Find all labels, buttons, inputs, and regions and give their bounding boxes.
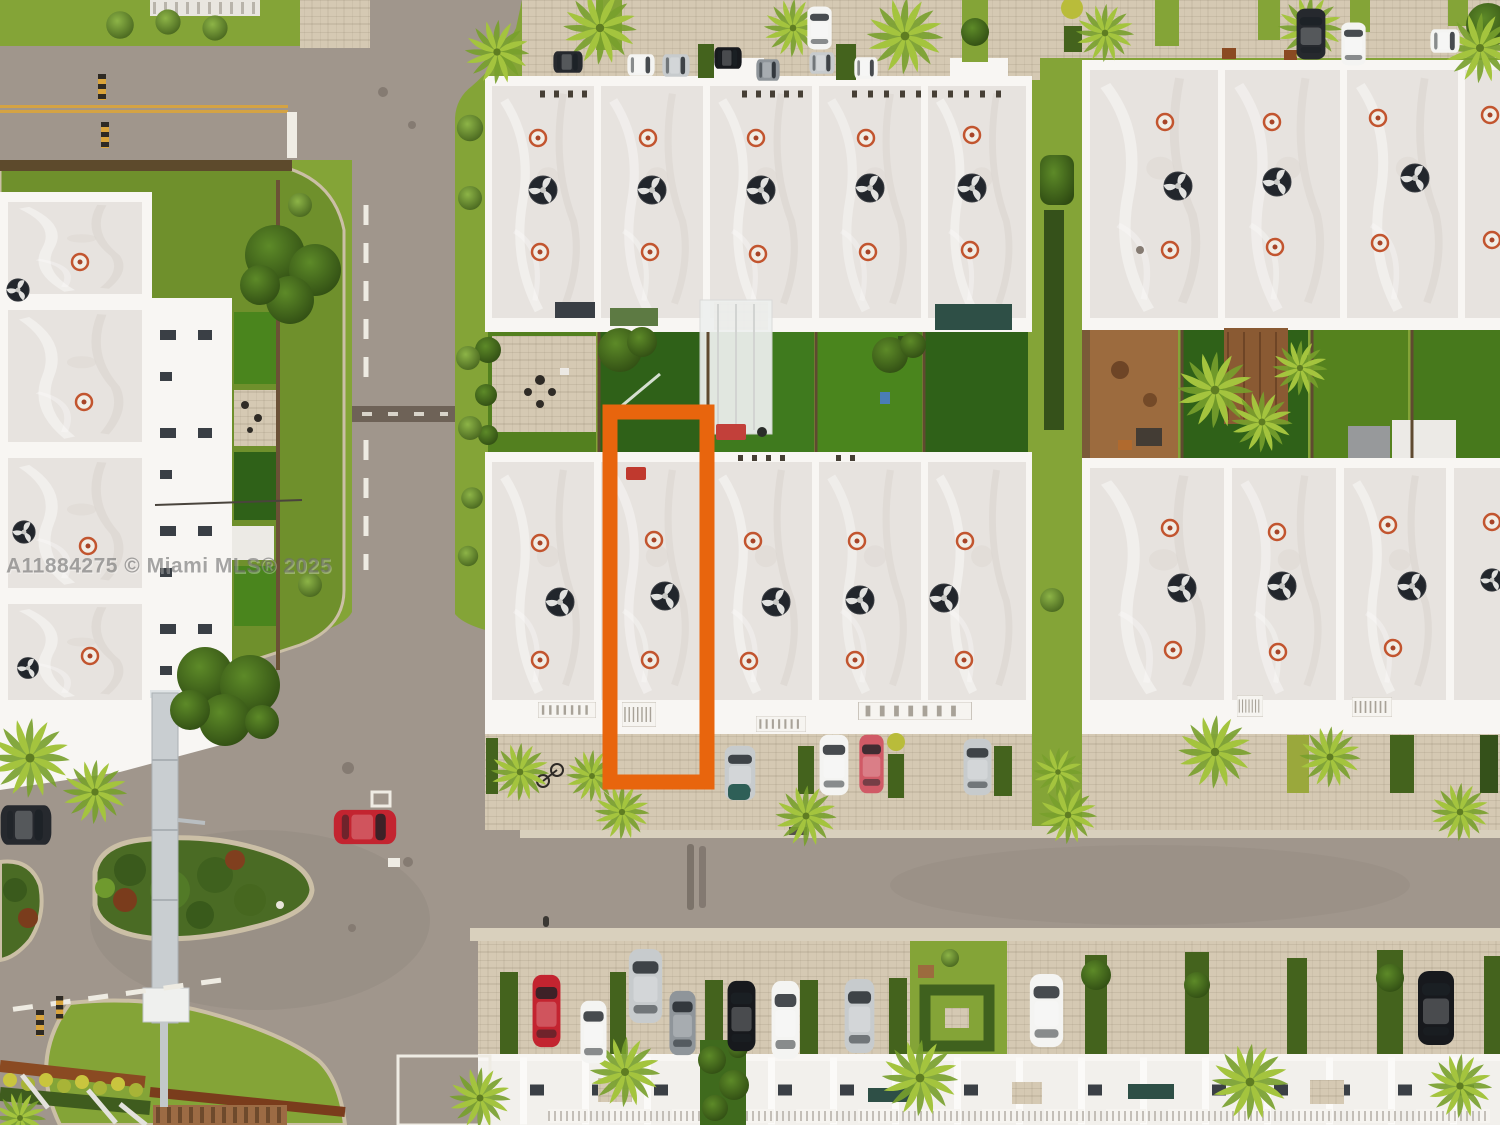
- parked-car: [1418, 971, 1454, 1045]
- round-bush: [456, 346, 480, 370]
- striped-bollard: [101, 122, 109, 148]
- roof-vent-icon: [82, 648, 98, 664]
- parked-car: [807, 7, 831, 50]
- round-bush: [155, 9, 180, 34]
- round-bush: [457, 115, 483, 141]
- parked-car: [553, 51, 582, 73]
- aerial-photo-canvas: A11884275 © Miami MLS® 2025 A11884275 © …: [0, 0, 1500, 1125]
- aerial-photo: A11884275 © Miami MLS® 2025 A11884275 © …: [0, 0, 1500, 1125]
- roof-vent-icon: [76, 394, 92, 410]
- round-bush: [288, 193, 312, 217]
- road-tire-marks: [687, 844, 694, 910]
- sidewalk-south: [470, 928, 1500, 941]
- pedestrian: [543, 916, 549, 927]
- round-bush: [106, 11, 134, 39]
- building-top-right: [1082, 60, 1500, 330]
- building-top-center: [485, 58, 1032, 332]
- parked-car: [669, 991, 695, 1055]
- pavers-top-left: [300, 0, 370, 48]
- building-middle-center: [485, 452, 1032, 734]
- parked-car: [854, 57, 877, 79]
- parked-car: [756, 59, 779, 81]
- watermark-text: A11884275 © Miami MLS® 2025: [6, 555, 332, 578]
- rooftop-grill: [626, 467, 646, 480]
- round-bush: [461, 487, 483, 509]
- parked-car: [820, 735, 849, 795]
- parked-car: [1, 805, 52, 845]
- round-bush: [458, 186, 482, 210]
- road-top-horizontal: [0, 46, 330, 160]
- stop-bar: [287, 112, 297, 158]
- roof-vent-icon: [80, 538, 96, 554]
- striped-bollard: [56, 996, 63, 1019]
- pavers-middle-strip: [485, 730, 1032, 830]
- roof-fan-icon: [12, 521, 35, 543]
- roof-fan-icon: [6, 279, 29, 301]
- solar-panel: [1128, 1084, 1174, 1099]
- parked-car: [859, 735, 883, 794]
- round-bush: [202, 15, 227, 40]
- parked-car: [627, 54, 654, 76]
- parked-car: [728, 981, 756, 1051]
- parked-car: [772, 981, 800, 1059]
- parked-car: [662, 54, 689, 77]
- striped-bollard: [98, 74, 106, 100]
- roof-units-middle-center: [492, 462, 1026, 700]
- parked-car: [1430, 29, 1459, 52]
- parked-car: [845, 979, 875, 1053]
- parked-car: [809, 52, 834, 74]
- round-bush: [458, 546, 478, 566]
- parked-car: [629, 949, 662, 1023]
- round-bush: [1040, 588, 1064, 612]
- picnic-table: [716, 424, 746, 440]
- parked-car: [580, 1001, 606, 1063]
- striped-bollard: [36, 1010, 44, 1036]
- street-hedge: [0, 160, 292, 171]
- parked-car: [1030, 974, 1063, 1047]
- roof-vent-icon: [72, 254, 88, 270]
- building-middle-right: [1082, 458, 1500, 734]
- backyard-patio: [492, 336, 596, 432]
- parked-car: [1297, 9, 1326, 60]
- parked-car: [964, 739, 992, 796]
- parked-car: [533, 975, 561, 1047]
- center-line: [0, 105, 288, 108]
- round-bush: [458, 416, 482, 440]
- roof-units-top-right: [1090, 70, 1500, 318]
- parked-car: [1341, 23, 1365, 66]
- parked-car: [714, 47, 741, 69]
- roof-fan-icon: [17, 658, 38, 679]
- parked-car: [728, 784, 750, 800]
- driving-car: [334, 810, 396, 844]
